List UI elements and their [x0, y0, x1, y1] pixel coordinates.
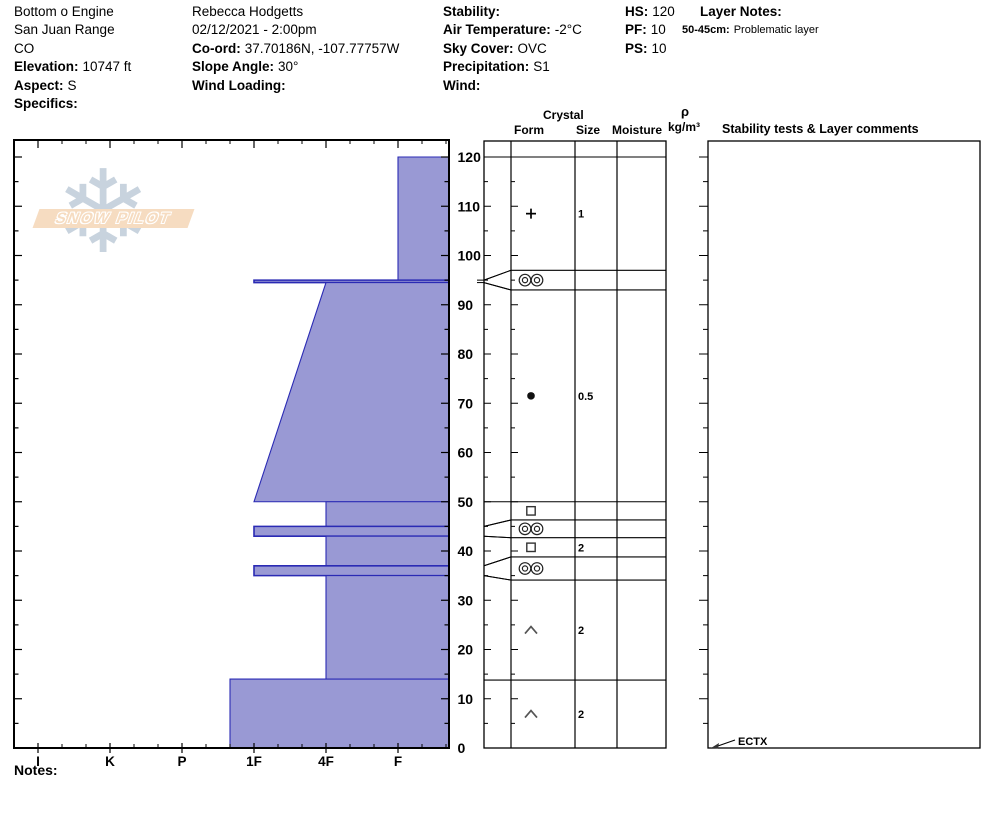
- depth-axis-label: 110: [458, 198, 481, 214]
- grain-symbol-melt-freeze-crust: [522, 526, 527, 531]
- layer-flag-connector: [484, 536, 511, 537]
- grain-symbol-melt-freeze-crust: [519, 274, 531, 286]
- grain-symbol-melt-freeze-crust: [522, 566, 527, 571]
- grain-symbol-melt-freeze-crust: [531, 523, 543, 535]
- depth-axis-label: 40: [458, 543, 474, 559]
- grain-symbol-facets: [527, 543, 535, 551]
- hardness-axis-label: 4F: [318, 754, 334, 769]
- grain-symbol-melt-freeze-crust: [534, 526, 539, 531]
- snow-layer: [326, 576, 449, 679]
- grain-symbol-melt-freeze-crust: [534, 278, 539, 283]
- grain-symbol-melt-freeze-crust: [531, 563, 543, 575]
- snow-layer: [254, 283, 449, 502]
- layer-flag-connector: [484, 270, 511, 280]
- hardness-axis-label: K: [105, 754, 115, 769]
- depth-axis-label: 70: [458, 395, 474, 411]
- grain-size-value: 0.5: [578, 391, 593, 403]
- hardness-axis-label: I: [36, 754, 40, 769]
- stability-test-label: ECTX: [738, 736, 768, 748]
- grain-size-value: 1: [578, 209, 584, 221]
- snow-layer: [398, 157, 449, 280]
- grain-symbol-facets: [527, 507, 535, 515]
- stability-tests-box: [708, 141, 980, 748]
- layer-flag-connector: [484, 557, 511, 566]
- grain-size-value: 2: [578, 709, 584, 721]
- layer-flag-connector: [484, 520, 511, 526]
- hardness-axis-label: P: [177, 754, 186, 769]
- layer-flag-connector: [484, 283, 511, 290]
- stability-test-arrowhead: [711, 743, 719, 749]
- snow-layer: [230, 679, 449, 748]
- depth-axis-label: 60: [458, 445, 474, 461]
- grain-symbol-melt-freeze-crust: [519, 523, 531, 535]
- grain-size-value: 2: [578, 625, 584, 637]
- depth-axis-label: 10: [458, 691, 474, 707]
- layer-flag-connector: [484, 576, 511, 580]
- hardness-axis-label: F: [394, 754, 402, 769]
- depth-axis-label: 100: [458, 248, 482, 264]
- hardness-axis-label: 1F: [246, 754, 262, 769]
- depth-axis-label: 90: [458, 297, 474, 313]
- grain-symbol-melt-freeze-crust: [531, 274, 543, 286]
- depth-axis-label: 30: [458, 592, 474, 608]
- grain-symbol-rounded-grains: [527, 392, 535, 400]
- grain-symbol-melt-freeze-crust: [522, 278, 527, 283]
- snowpilot-profile-page: Bottom o Engine San Juan Range CO Elevat…: [0, 0, 994, 840]
- snow-profile-chart: 0102030405060708090100110120IKP1F4FF10.5…: [0, 0, 994, 840]
- snow-layer: [254, 566, 449, 576]
- snow-layer: [254, 526, 449, 536]
- depth-axis-label: 0: [458, 740, 466, 756]
- grain-symbol-depth-hoar: [525, 711, 537, 718]
- grain-symbol-depth-hoar: [525, 627, 537, 634]
- depth-axis-label: 20: [458, 642, 474, 658]
- grain-symbol-melt-freeze-crust: [534, 566, 539, 571]
- depth-axis-label: 120: [458, 149, 482, 165]
- depth-axis-label: 50: [458, 494, 474, 510]
- grain-size-value: 2: [578, 542, 584, 554]
- grain-symbol-melt-freeze-crust: [519, 563, 531, 575]
- depth-axis-label: 80: [458, 346, 474, 362]
- snow-layer: [326, 536, 449, 566]
- snow-layer: [326, 502, 449, 527]
